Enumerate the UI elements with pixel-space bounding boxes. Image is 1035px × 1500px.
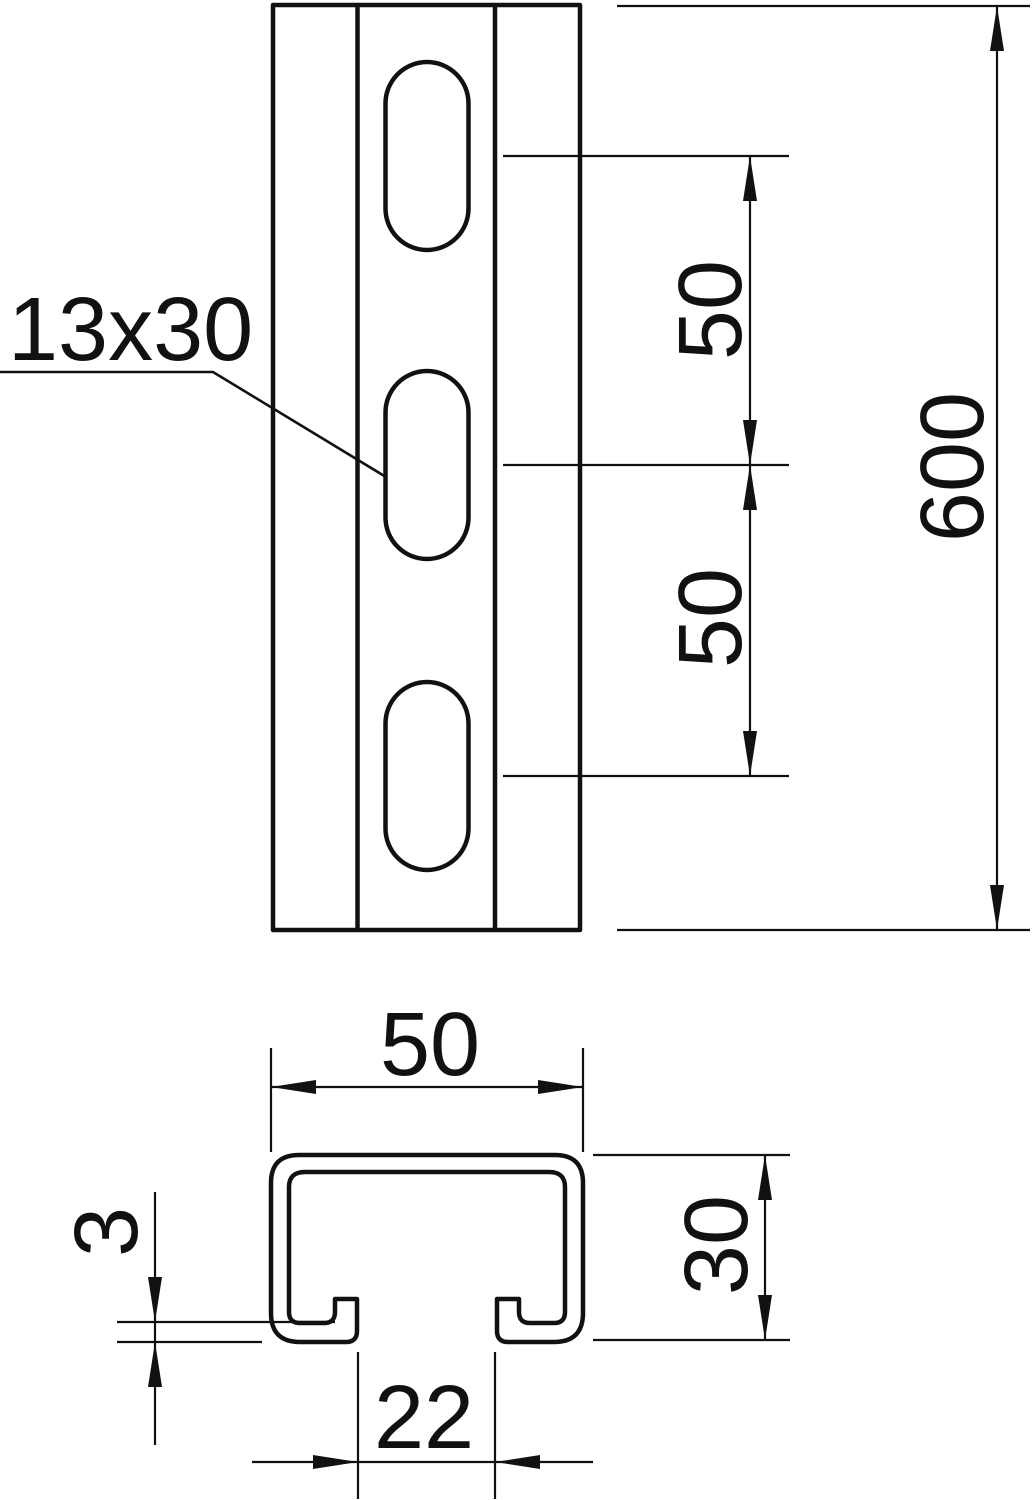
slot-top (386, 62, 469, 250)
profile-opening-dimension: 22 (252, 1352, 593, 1499)
dimension-value-pitch-2: 50 (661, 568, 761, 668)
slot-bottom (386, 682, 469, 870)
arrowhead-down-icon (148, 1277, 162, 1322)
arrowhead-down-icon (758, 1295, 772, 1340)
arrowhead-up-icon (990, 6, 1004, 51)
slot-middle (386, 371, 469, 559)
dimension-value-pitch-1: 50 (661, 260, 761, 360)
slot-size-label: 13x30 (8, 280, 253, 380)
slot-pitch-dimensions: 50 50 (503, 156, 789, 776)
dimension-value-opening: 22 (374, 1368, 474, 1468)
arrowhead-up-icon (148, 1342, 162, 1387)
arrowhead-down-icon (743, 420, 757, 465)
rail-dimension-drawing: 13x30 50 50 6 (0, 0, 1035, 1500)
arrowhead-down-icon (990, 885, 1004, 930)
dimension-value-total-length: 600 (903, 392, 1003, 542)
arrowhead-right-icon (538, 1080, 583, 1094)
section-view: 50 30 22 (57, 995, 790, 1499)
total-length-dimension: 600 (617, 6, 1030, 930)
profile-outline (271, 1155, 583, 1342)
arrowhead-up-icon (743, 465, 757, 510)
slot-label-leader-line (0, 372, 386, 477)
arrowhead-down-icon (743, 731, 757, 776)
arrowhead-up-icon (758, 1155, 772, 1200)
technical-drawing-page: 13x30 50 50 6 (0, 0, 1035, 1500)
profile-width-dimension: 50 (271, 995, 583, 1152)
arrowhead-left-icon (271, 1080, 316, 1094)
arrowhead-left-icon (495, 1455, 540, 1469)
front-view: 13x30 50 50 6 (0, 5, 1030, 930)
profile-height-dimension: 30 (593, 1155, 790, 1340)
dimension-value-profile-width: 50 (380, 995, 480, 1095)
arrowhead-right-icon (313, 1455, 358, 1469)
dimension-value-thickness: 3 (57, 1207, 157, 1257)
arrowhead-up-icon (743, 156, 757, 201)
rail-outline (273, 5, 580, 930)
dimension-value-profile-height: 30 (667, 1195, 767, 1295)
